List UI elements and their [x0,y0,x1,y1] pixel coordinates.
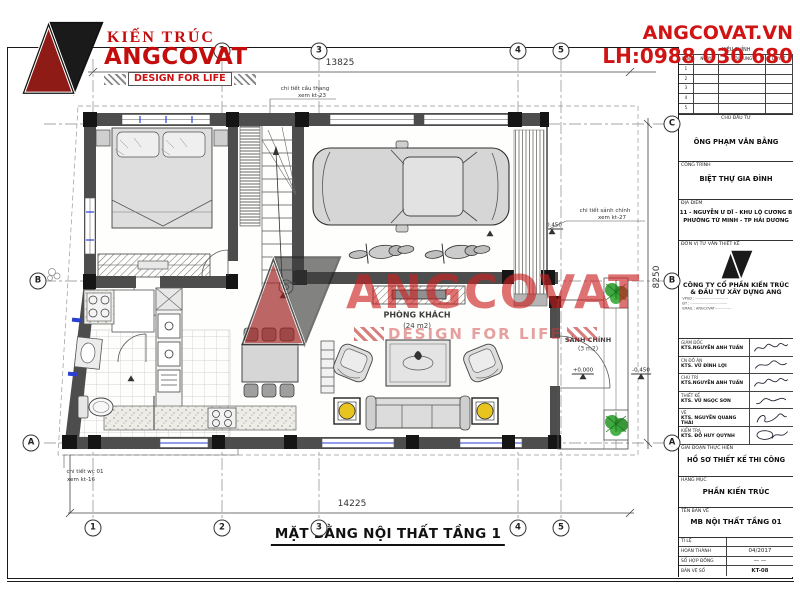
grid-bubble-b-right: B [664,273,681,290]
drawing-label: TÊN BẢN VẼ [679,508,793,515]
category-value: PHẦN KIẾN TRÚC [679,488,793,496]
shrub-icon [48,269,61,281]
firm-section: ĐƠN VỊ TƯ VẤN THIẾT KẾ CÔNG TY CỔ PHẦN K… [679,241,793,339]
signature-mark [750,392,793,409]
firm-logo-icon [716,248,756,282]
contact-info: ANGCOVAT.VN LH:0988 030 680 [583,23,793,68]
grid-bubble-5-bottom: 5 [553,520,570,537]
signature-row: THIẾT KẾKTS. VŨ NGỌC SƠN [679,392,793,410]
sig-name: KTS. VŨ NGỌC SƠN [681,399,747,404]
grid-bubble-4-bottom: 4 [510,520,527,537]
firm-addr-2: ĐT : ·································· [679,301,776,305]
revision-row: 3 [679,84,793,94]
firm-name-2: & ĐẦU TƯ XÂY DỰNG ANG [679,289,793,296]
bed [96,128,228,228]
footer-value: — — [727,558,793,564]
footer-label: TỈ LỆ [679,538,727,547]
sig-role: THIẾT KẾ [681,393,747,398]
sig-name: KTS. NGUYỄN QUANG THÁI [681,416,747,426]
grid-bubble-3-bottom: 3 [311,520,328,537]
location-line2: PHƯỜNG TỨ MINH - TP HẢI DƯƠNG [679,218,793,224]
firm-addr-1: VPGD : ······························ [679,296,776,300]
garage-ramp [514,130,547,306]
signature-row: GIÁM ĐỐCKTS.NGUYỄN ANH TUẤN [679,339,793,357]
signature-row: CHỦ TRÌKTS.NGUYỄN ANH TUẤN [679,374,793,392]
grid-bubble-a-right: A [664,435,681,452]
stage-section: GIAI ĐOẠN THỰC HIỆN HỒ SƠ THIẾT KẾ THI C… [679,445,793,477]
signature-row: CN ĐỒ ÁNKTS. VŨ ĐÌNH LỢI [679,357,793,375]
end-table-right [472,398,498,424]
drawing-name-section: TÊN BẢN VẼ MB NỘI THẤT TẦNG 01 [679,508,793,538]
revision-num: 2 [679,75,694,85]
project-name: BIỆT THỰ GIA ĐÌNH [679,175,793,183]
sig-name: KTS.NGUYỄN ANH TUẤN [681,346,747,351]
revision-num: 3 [679,84,694,94]
location-line1: 11 - NGUYỄN Ư DĨ - KHU LỘ CƯƠNG B [679,210,793,216]
footer-row: TỈ LỆ [679,538,793,548]
footer-label: SỐ HỢP ĐỒNG [679,557,727,566]
tv-cabinet [373,286,465,304]
grid-bubble-c-right: C [664,116,681,133]
signature-mark [750,374,793,391]
contact-phone: LH:0988 030 680 [583,45,793,68]
owner-label: CHỦ ĐẦU TƯ [679,115,793,122]
grid-bubble-4-top: 4 [510,43,527,60]
stage-label: GIAI ĐOẠN THỰC HIỆN [679,445,793,452]
category-label: HẠNG MỤC [679,477,793,484]
drawing-value: MB NỘI THẤT TẦNG 01 [679,517,793,526]
grid-bubble-3-top: 3 [311,43,328,60]
footer-row: SỐ HỢP ĐỒNG — — [679,557,793,567]
sig-role: KIỂM TRA [681,428,747,433]
end-table-left [334,398,360,424]
sig-role: CN ĐỒ ÁN [681,358,747,363]
stage-value: HỒ SƠ THIẾT KẾ THI CÔNG [679,456,793,464]
footer-label: HOÀN THÀNH [679,547,727,556]
kitchen-counter-strip [156,288,182,408]
sig-role: VẼ [681,410,747,415]
signature-mark [750,409,793,426]
wardrobe [98,254,210,277]
sig-role: GIÁM ĐỐC [681,340,747,345]
firm-label: ĐƠN VỊ TƯ VẤN THIẾT KẾ [679,241,793,248]
sofa [366,396,470,430]
tagline-hatch-right [234,74,256,85]
room-living-name: PHÒNG KHÁCH [383,311,450,320]
sig-role: CHỦ TRÌ [681,375,747,380]
tagline-hatch-left [104,74,126,85]
brand-tagline: DESIGN FOR LIFE [128,72,232,86]
sig-name: KTS.NGUYỄN ANH TUẤN [681,381,747,386]
footer-table: TỈ LỆ HOÀN THÀNH 04/2017 SỐ HỢP ĐỒNG — —… [679,538,793,576]
signature-table: GIÁM ĐỐCKTS.NGUYỄN ANH TUẤN CN ĐỒ ÁNKTS.… [679,339,793,445]
footer-row: HOÀN THÀNH 04/2017 [679,547,793,557]
firm-addr-3: EMAIL : ANGCOVAT··············· [679,306,776,310]
dining-set [242,328,298,397]
brand-angcovat: ANGCOVAT [104,44,248,70]
stove-corner [84,290,114,324]
grid-bubble-a-left: A [23,435,40,452]
signature-row: KIỂM TRAKTS. ĐỖ HUY QUỲNH [679,427,793,445]
kitchen-counter-bottom [104,406,296,430]
signature-row: VẼKTS. NGUYỄN QUANG THÁI [679,409,793,427]
firm-name-1: CÔNG TY CỔ PHẦN KIẾN TRÚC [679,282,793,289]
title-block: HIỆU CHỈNH LẦN NGÀY NỘI DUNG DUYỆT 1 2 3… [678,47,793,577]
revision-num: 4 [679,94,694,104]
location-section: ĐỊA ĐIỂM 11 - NGUYỄN Ư DĨ - KHU LỘ CƯƠNG… [679,200,793,241]
pantry [112,290,154,332]
brand-tagline-row: DESIGN FOR LIFE [104,72,256,86]
room-living-area: (24 m2) [403,322,431,330]
footer-value: KT-08 [727,568,793,574]
owner-name: ÔNG PHẠM VĂN BẰNG [679,138,793,146]
car [313,141,509,232]
category-section: HẠNG MỤC PHẦN KIẾN TRÚC [679,477,793,508]
footer-value: 04/2017 [727,548,793,554]
revision-row: 4 [679,94,793,104]
project-label: CÔNG TRÌNH [679,162,793,169]
grid-bubble-b-left: B [30,273,47,290]
grid-bubble-1-bottom: 1 [85,520,102,537]
footer-label: BẢN VẼ SỐ [679,566,727,576]
footer-row: BẢN VẼ SỐ KT-08 [679,566,793,576]
revision-num: 5 [679,104,694,114]
signature-mark [750,339,793,356]
drawing-sheet: ANGCOVAT DESIGN FOR LIFE KIẾN TRÚC ANGCO… [0,0,800,600]
contact-website: ANGCOVAT.VN [583,23,793,45]
coffee-table [386,340,450,386]
grid-bubble-5-top: 5 [553,43,570,60]
brand-logo-icon [20,16,104,100]
sig-name: KTS. ĐỖ HUY QUỲNH [681,434,747,439]
project-section: CÔNG TRÌNH BIỆT THỰ GIA ĐÌNH [679,162,793,200]
grid-bubble-2-bottom: 2 [214,520,231,537]
signature-mark [750,357,793,374]
wc-sink [74,337,102,369]
revision-row: 2 [679,75,793,85]
location-label: ĐỊA ĐIỂM [679,200,793,207]
revision-row: 5 [679,104,793,114]
shelf-ladder [321,341,334,393]
sig-name: KTS. VŨ ĐÌNH LỢI [681,364,747,369]
signature-mark [750,427,793,444]
owner-section: CHỦ ĐẦU TƯ ÔNG PHẠM VĂN BẰNG [679,115,793,162]
